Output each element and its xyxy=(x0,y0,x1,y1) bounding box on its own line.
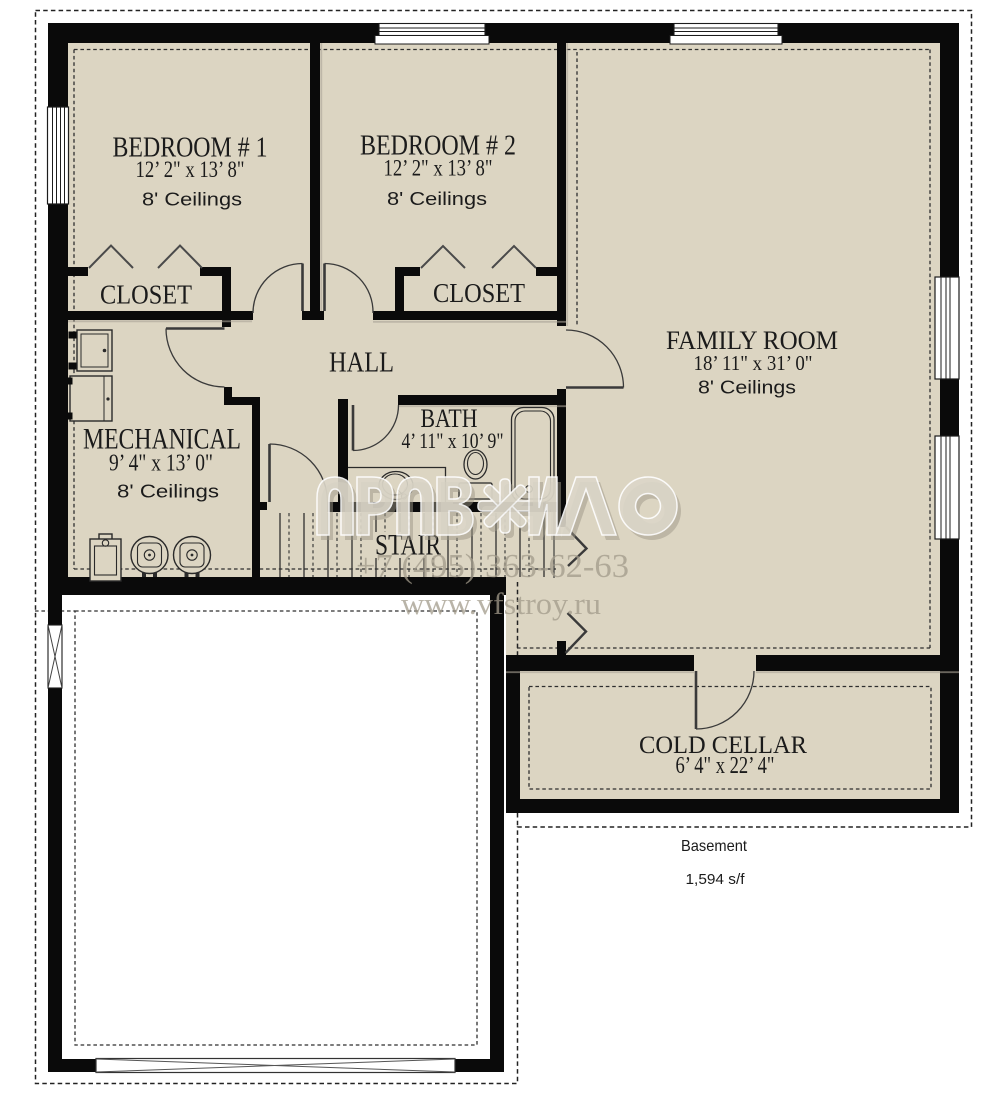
svg-text:Basement: Basement xyxy=(681,838,748,855)
svg-text:12’ 2" x 13’ 8": 12’ 2" x 13’ 8" xyxy=(384,156,493,181)
svg-text:8' Ceilings: 8' Ceilings xyxy=(117,482,219,502)
svg-text:9’ 4" x 13’ 0": 9’ 4" x 13’ 0" xyxy=(109,451,213,477)
svg-text:+7 (495) 363-62-63: +7 (495) 363-62-63 xyxy=(356,548,629,585)
svg-text:1,594 s/f: 1,594 s/f xyxy=(686,871,746,888)
svg-text:8' Ceilings: 8' Ceilings xyxy=(698,378,796,398)
svg-text:4’ 11" x 10’ 9": 4’ 11" x 10’ 9" xyxy=(402,428,504,453)
svg-text:www.vfstroy.ru: www.vfstroy.ru xyxy=(401,586,601,621)
svg-text:6’ 4" x 22’ 4": 6’ 4" x 22’ 4" xyxy=(676,753,775,779)
svg-text:CLOSET: CLOSET xyxy=(100,280,192,310)
svg-text:8' Ceilings: 8' Ceilings xyxy=(387,189,487,209)
svg-text:18’ 11" x 31’ 0": 18’ 11" x 31’ 0" xyxy=(694,351,813,375)
svg-text:12’ 2" x 13’ 8": 12’ 2" x 13’ 8" xyxy=(136,157,245,182)
svg-text:CLOSET: CLOSET xyxy=(433,278,525,308)
svg-text:HALL: HALL xyxy=(329,347,394,379)
svg-text:8' Ceilings: 8' Ceilings xyxy=(142,190,242,210)
